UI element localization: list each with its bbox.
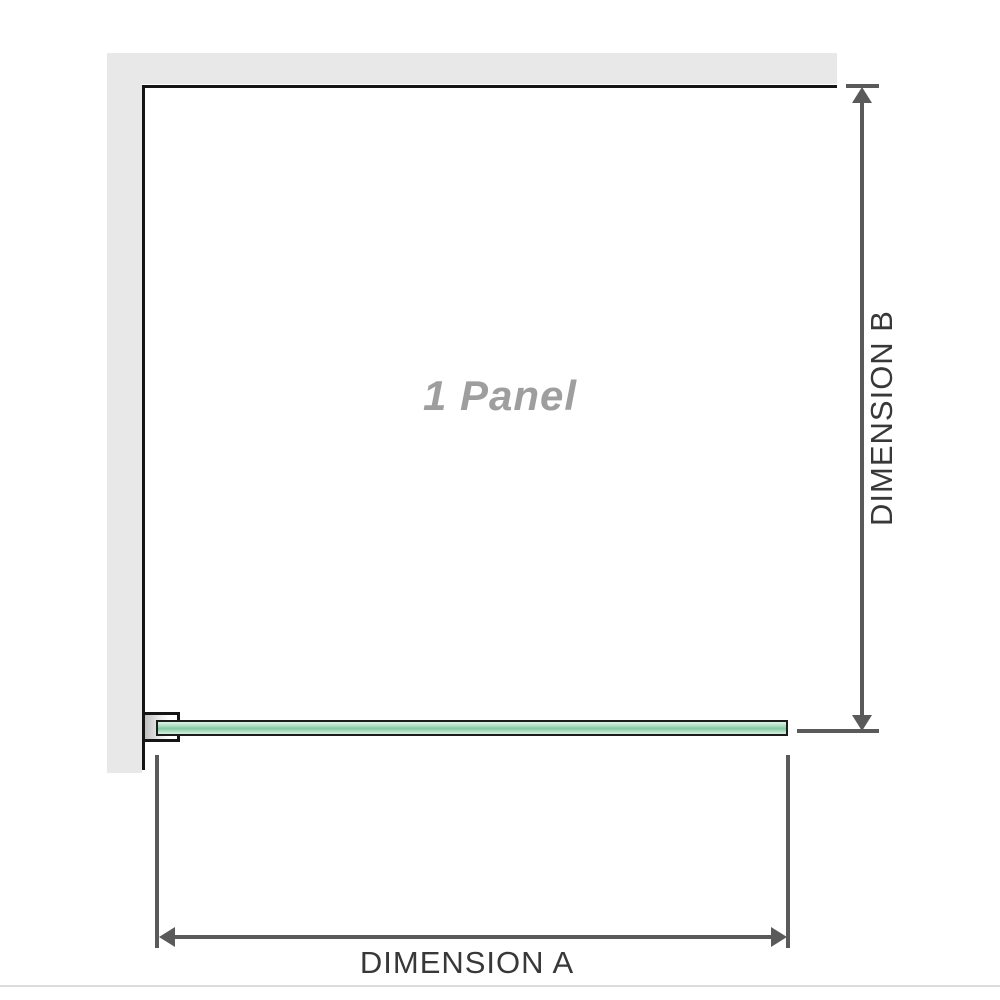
bottom-divider-line <box>0 985 1000 987</box>
shower-screen-dimension-diagram: 1 Panel DIMENSION B DIMENSION A <box>0 0 1000 1000</box>
glass-panel-top-view <box>156 720 788 736</box>
arrow-left-icon <box>159 927 175 947</box>
panel-outline <box>142 85 837 770</box>
dimension-a-left-extension-line <box>155 755 159 948</box>
dimension-a-label: DIMENSION A <box>360 945 574 981</box>
dimension-a-line <box>165 935 777 939</box>
panel-label: 1 Panel <box>423 372 577 420</box>
dimension-a-right-extension-line <box>786 755 790 948</box>
wall-top <box>107 53 837 84</box>
wall-left <box>107 53 142 773</box>
arrow-down-icon <box>852 715 872 731</box>
dimension-b-label: DIMENSION B <box>864 310 900 526</box>
arrow-up-icon <box>852 87 872 103</box>
arrow-right-icon <box>771 927 787 947</box>
